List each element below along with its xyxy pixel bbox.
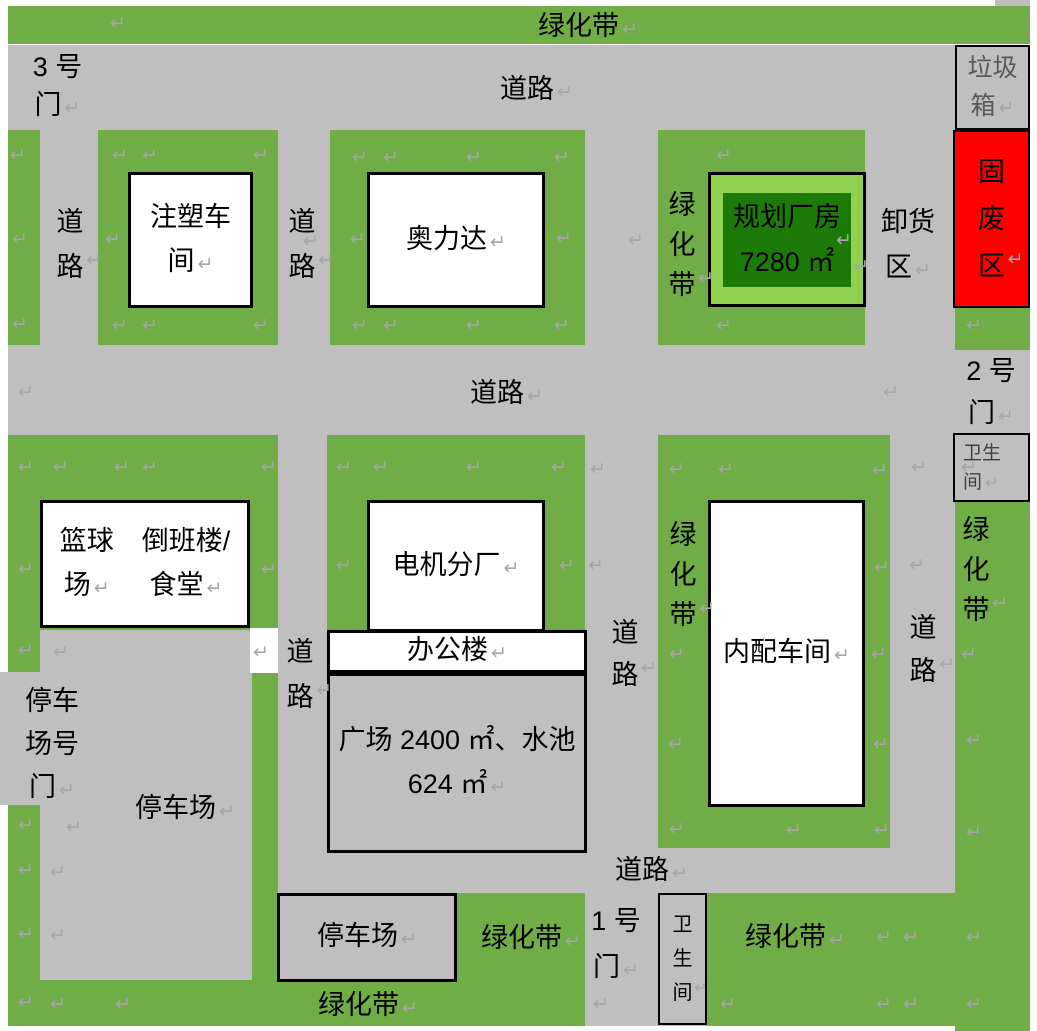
gate-1-label: 1 号 门↵	[586, 898, 646, 993]
return-mark: ↵	[261, 560, 277, 579]
road-east-center-label: 道路↵	[610, 612, 640, 696]
return-mark: ↵	[873, 735, 889, 754]
return-mark: ↵	[12, 315, 28, 334]
green-strip-parking-right	[252, 673, 278, 980]
basketball-court-label: 篮球 场↵	[60, 519, 114, 610]
return-mark: ↵	[966, 995, 982, 1014]
return-mark: ↵	[261, 458, 277, 477]
plaza-pool-zone[interactable]: 广场 2400 ㎡、水池 624 ㎡↵	[327, 673, 587, 853]
return-mark: ↵	[142, 458, 158, 477]
green-belt-bottom-center-label: 绿化带↵	[481, 921, 581, 958]
return-mark: ↵	[18, 861, 34, 880]
plaza-pool-label: 广场 2400 ㎡、水池 624 ㎡↵	[338, 718, 575, 809]
building-motor-branch[interactable]: 电机分厂↵	[367, 500, 545, 632]
return-mark: ↵	[551, 458, 567, 477]
return-mark: ↵	[593, 995, 609, 1014]
return-mark: ↵	[903, 995, 919, 1014]
return-mark: ↵	[18, 560, 34, 579]
return-mark: ↵	[53, 643, 69, 662]
return-mark: ↵	[876, 928, 892, 947]
return-mark: ↵	[383, 148, 399, 167]
green-belt-top-label: 绿化带↵	[538, 9, 638, 46]
return-mark: ↵	[114, 458, 130, 477]
green-belt-bottom-right-label: 绿化带↵	[745, 920, 845, 957]
return-mark: ↵	[554, 316, 570, 335]
return-mark: ↵	[628, 231, 644, 250]
road-bottom-label: 道路↵	[615, 853, 688, 890]
road-left-label: 道路↵	[55, 200, 85, 290]
return-mark: ↵	[18, 641, 34, 660]
return-mark: ↵	[18, 993, 34, 1012]
return-mark: ↵	[556, 229, 572, 248]
return-mark: ↵	[716, 146, 732, 165]
return-mark: ↵	[718, 460, 734, 479]
shift-dorm-canteen-label: 倒班楼/ 食堂↵	[142, 519, 231, 610]
return-mark: ↵	[669, 645, 685, 664]
return-mark: ↵	[383, 316, 399, 335]
return-mark: ↵	[253, 146, 269, 165]
return-mark: ↵	[466, 316, 482, 335]
return-mark: ↵	[253, 643, 269, 662]
motor-branch-label: 电机分厂↵	[393, 543, 520, 590]
neipei-workshop-label: 内配车间↵	[723, 630, 850, 677]
return-mark: ↵	[336, 458, 352, 477]
return-mark: ↵	[668, 735, 684, 754]
building-aolida[interactable]: 奥力达↵	[367, 172, 545, 308]
return-mark: ↵	[588, 556, 604, 575]
return-mark: ↵	[909, 556, 925, 575]
return-mark: ↵	[590, 460, 606, 479]
parking-lot-south-zone[interactable]: 停车场↵	[277, 893, 457, 982]
return-mark: ↵	[53, 458, 69, 477]
return-mark: ↵	[872, 461, 888, 480]
return-mark: ↵	[966, 316, 982, 335]
return-mark: ↵	[871, 645, 887, 664]
return-mark: ↵	[50, 863, 66, 882]
return-mark: ↵	[50, 995, 66, 1014]
return-mark: ↵	[373, 458, 389, 477]
return-mark: ↵	[554, 148, 570, 167]
return-mark: ↵	[836, 231, 852, 250]
return-mark: ↵	[10, 146, 26, 165]
return-mark: ↵	[966, 731, 982, 750]
green-belt-right-label: 绿化带↵	[961, 510, 991, 630]
gate-3-label: 3 号 门↵	[20, 48, 95, 127]
return-mark: ↵	[142, 146, 158, 165]
return-mark: ↵	[303, 232, 319, 251]
green-belt-neipei-label: 绿化带↵	[668, 515, 698, 635]
return-mark: ↵	[253, 316, 269, 335]
return-mark: ↵	[105, 230, 121, 249]
return-mark: ↵	[110, 14, 126, 33]
restroom-bottom-label: 卫生间↵	[672, 908, 694, 1010]
injection-molding-label: 注塑车 间↵	[150, 195, 231, 286]
return-mark: ↵	[911, 458, 927, 477]
road-east-label: 道路↵	[908, 607, 938, 693]
return-mark: ↵	[669, 460, 685, 479]
return-mark: ↵	[669, 820, 685, 839]
road-top-label: 道路↵	[500, 72, 573, 109]
return-mark: ↵	[874, 558, 890, 577]
green-belt-planned-label: 绿化带↵	[667, 185, 697, 305]
return-mark: ↵	[18, 383, 34, 402]
return-mark: ↵	[966, 823, 982, 842]
return-mark: ↵	[786, 821, 802, 840]
building-injection-molding[interactable]: 注塑车 间↵	[128, 172, 253, 308]
green-belt-top	[8, 6, 1030, 44]
return-mark: ↵	[12, 230, 28, 249]
return-mark: ↵	[352, 316, 368, 335]
parking-lot-label: 停车场↵	[135, 791, 235, 828]
building-basketball-dorm[interactable]: 篮球 场↵ 倒班楼/ 食堂↵	[40, 500, 250, 628]
restroom-bottom-zone[interactable]: 卫生间↵	[658, 893, 707, 1025]
return-mark: ↵	[903, 928, 919, 947]
return-mark: ↵	[115, 995, 131, 1014]
trash-bin-label: 垃圾 箱↵	[967, 49, 1017, 127]
return-mark: ↵	[66, 818, 82, 837]
return-mark: ↵	[874, 821, 890, 840]
return-mark: ↵	[336, 556, 352, 575]
return-mark: ↵	[466, 148, 482, 167]
return-mark: ↵	[961, 645, 977, 664]
road-middle-label: 道路↵	[470, 376, 543, 413]
solid-waste-zone[interactable]: 固废区↵	[953, 130, 1030, 308]
site-plan-canvas: 垃圾 箱↵ 固废区↵ 卫生 间↵ 注塑车 间↵ 奥力达↵ 规划厂房 7280 ㎡	[0, 0, 1037, 1031]
unloading-area-label: 卸货 区↵	[876, 200, 940, 293]
planned-plant-label: 规划厂房 7280 ㎡ ↵	[723, 193, 851, 287]
return-mark: ↵	[966, 928, 982, 947]
return-mark: ↵	[559, 556, 575, 575]
office-label: 办公楼↵	[407, 632, 507, 671]
building-neipei-workshop[interactable]: 内配车间↵	[708, 500, 865, 807]
return-mark: ↵	[18, 458, 34, 477]
green-belt-bottom-center	[457, 893, 585, 1026]
return-mark: ↵	[961, 458, 977, 477]
road-center-lower-label: 道路↵	[285, 630, 315, 720]
return-mark: ↵	[350, 230, 366, 249]
solid-waste-label: 固废区↵	[977, 149, 1007, 290]
gate-2-label: 2 号 门↵	[955, 350, 1027, 437]
return-mark: ↵	[352, 148, 368, 167]
return-mark: ↵	[18, 925, 34, 944]
parking-gate-label: 停车 场号 门↵	[20, 680, 84, 812]
basketball-dorm-label: 篮球 场↵ 倒班楼/ 食堂↵	[60, 519, 231, 610]
return-mark: ↵	[142, 316, 158, 335]
aolida-label: 奥力达↵	[406, 217, 506, 264]
trash-bin-zone[interactable]: 垃圾 箱↵	[955, 45, 1030, 130]
return-mark: ↵	[466, 458, 482, 477]
return-mark: ↵	[883, 383, 899, 402]
green-belt-bottom-band-label: 绿化带↵	[318, 988, 418, 1025]
return-mark: ↵	[720, 995, 736, 1014]
return-mark: ↵	[876, 995, 892, 1014]
return-mark: ↵	[50, 926, 66, 945]
building-office[interactable]: 办公楼↵	[327, 630, 587, 673]
return-mark: ↵	[716, 316, 732, 335]
return-mark: ↵	[112, 316, 128, 335]
return-mark: ↵	[112, 146, 128, 165]
parking-lot-south-label: 停车场↵	[317, 914, 417, 961]
return-mark: ↵	[18, 816, 34, 835]
